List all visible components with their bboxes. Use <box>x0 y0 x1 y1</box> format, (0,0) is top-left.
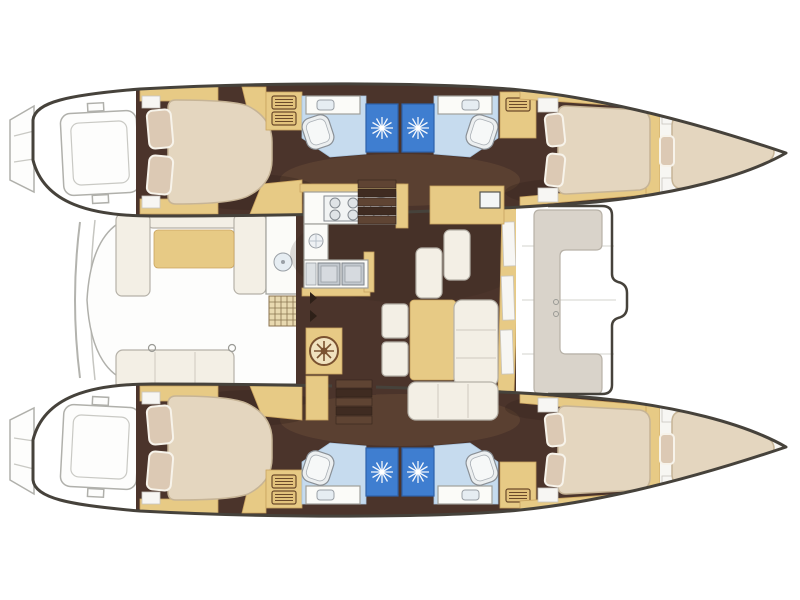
cockpit-table <box>154 230 234 268</box>
stairs-port-hull <box>358 180 396 224</box>
window-pane <box>501 276 515 320</box>
cockpit-bench <box>234 214 266 294</box>
forward-cockpit <box>516 202 627 398</box>
seat-cushion <box>382 304 408 338</box>
vent-grate <box>269 296 299 326</box>
nav-instrument-panel <box>480 192 500 208</box>
window-pane <box>500 330 514 374</box>
aft-crossbeam <box>75 222 80 378</box>
starboard-hull <box>10 378 800 520</box>
catamaran-floorplan <box>0 0 800 600</box>
lounge-seat <box>416 248 442 298</box>
small-round-sink <box>309 234 323 248</box>
window-pane <box>502 222 516 266</box>
cabinet-step <box>306 376 328 420</box>
seat-cushion <box>382 342 408 376</box>
galley-trim <box>396 184 408 228</box>
drainer <box>306 263 316 285</box>
salon-table <box>410 300 456 380</box>
cockpit-wet-bar <box>266 212 300 326</box>
cockpit-bench <box>116 214 150 296</box>
aft-cockpit <box>75 212 302 390</box>
floorplan-canvas <box>0 0 800 600</box>
sofa-bench <box>408 382 498 420</box>
stairs-starboard-hull <box>336 380 372 424</box>
sofa-bench <box>454 300 498 386</box>
lounge-seat <box>444 230 470 280</box>
